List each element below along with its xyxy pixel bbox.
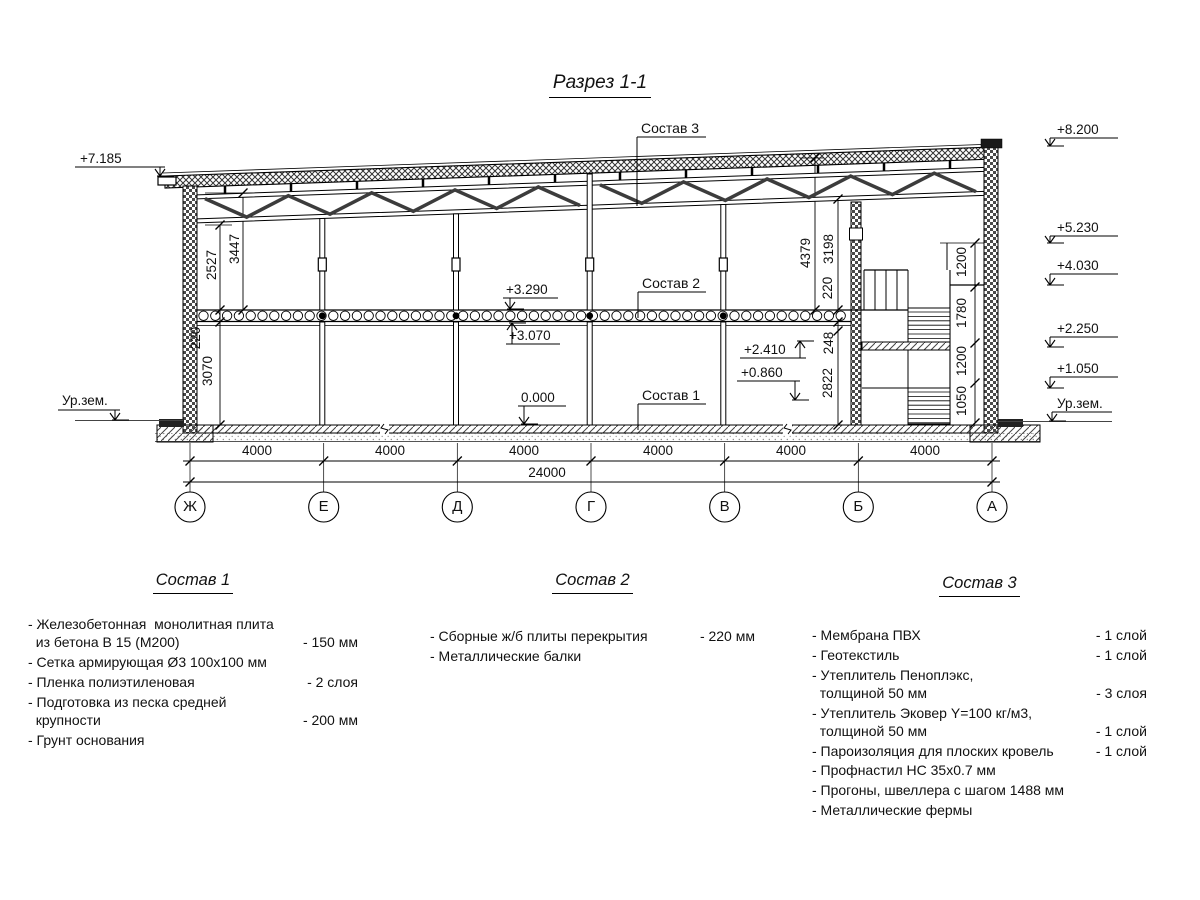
elevation-label-truss: +5.230 [1057,221,1099,235]
dim-label: 4379 [799,223,813,283]
dim-label-span: 4000 [227,444,287,458]
legend-item: - Мембрана ПВХ- 1 слой [812,627,1147,645]
legend-sostav-2: Состав 2 - Сборные ж/б плиты перекрытия-… [430,570,755,666]
floor-slab-cores [199,311,846,320]
legend-title: Состав 3 [939,573,1019,597]
dim-label: 3070 [201,341,215,401]
elevation-label-opening-top: +2.410 [744,343,786,357]
axis-bubble-label: Ж [175,500,205,514]
elevation-label-half: +1.050 [1057,362,1099,376]
dim-label: 3447 [228,219,242,279]
legend-item: - Сетка армирующая Ø3 100х100 мм [28,654,358,672]
stair-railing [864,270,908,310]
elevation-label-landing1: +2.250 [1057,322,1099,336]
legend-item: - Железобетонная монолитная плита из бет… [28,616,358,652]
legend-item: - Утеплитель Эковер Y=100 кг/м3, толщино… [812,705,1147,741]
dim-label-span: 4000 [494,444,554,458]
dim-label-span: 4000 [628,444,688,458]
axis-bubble-label: В [710,500,740,514]
ground-slab [155,419,1040,442]
dim-label-span: 4000 [761,444,821,458]
dim-label: 220 [821,258,835,318]
legend-item: - Подготовка из песка средней крупности-… [28,694,358,730]
legend-item: - Металлические балки [430,648,755,666]
legend-item: - Грунт основания [28,732,358,750]
ground-level-label-right: Ур.зем. [1057,397,1103,411]
section-drawing [0,0,1200,560]
legend-sostav-3: Состав 3 - Мембрана ПВХ- 1 слой - Геотек… [812,573,1147,820]
axis-bubble-label: Е [309,500,339,514]
elevation-label-floor: 0.000 [521,391,555,405]
stair-flight [908,388,950,424]
legend-item: - Пароизоляция для плоских кровель- 1 сл… [812,743,1147,761]
axis-bubble-label: Б [843,500,873,514]
axis-bubble-label: Д [442,500,472,514]
callout-slab: Состав 2 [642,276,700,290]
dim-label: 1050 [955,371,969,431]
elevation-label-parapet: +8.200 [1057,123,1099,137]
elevation-label-landing2: +4.030 [1057,259,1099,273]
legend-item: - Утеплитель Пеноплэкс, толщиной 50 мм- … [812,667,1147,703]
legend-item: - Пленка полиэтиленовая- 2 слоя [28,674,358,692]
stair-flight [908,308,950,342]
drawing-sheet: Разрез 1-1 [0,0,1200,900]
legend-item: - Профнастил НС 35х0.7 мм [812,762,1147,780]
axis-bubble-label: А [977,500,1007,514]
elevation-label-slab-top: +3.290 [506,283,548,297]
legend-sostav-1: Состав 1 - Железобетонная монолитная пли… [28,570,358,749]
dim-label-total: 24000 [507,466,587,480]
callout-floor: Состав 1 [642,388,700,402]
legend-item: - Металлические фермы [812,802,1147,820]
legend-item: - Прогоны, швеллера с шагом 1488 мм [812,782,1147,800]
dim-label: 2822 [821,353,835,413]
elevation-label-opening-bottom: +0.860 [741,366,783,380]
dim-label-span: 4000 [360,444,420,458]
dim-label: 2527 [205,235,219,295]
legend-item: - Сборные ж/б плиты перекрытия- 220 мм [430,628,755,646]
legend-item: - Геотекстиль- 1 слой [812,647,1147,665]
callout-roof: Состав 3 [641,121,699,135]
right-wall [981,139,1002,433]
legend-title: Состав 1 [153,570,233,594]
axis-bubble-label: Г [576,500,606,514]
legend-title: Состав 2 [552,570,632,594]
partition-wall-b [850,202,863,425]
ground-level-label-left: Ур.зем. [62,394,108,408]
elevation-label-slab-bottom: +3.070 [509,329,551,343]
elevation-label-roof-left: +7.185 [80,152,122,166]
dim-label-span: 4000 [895,444,955,458]
